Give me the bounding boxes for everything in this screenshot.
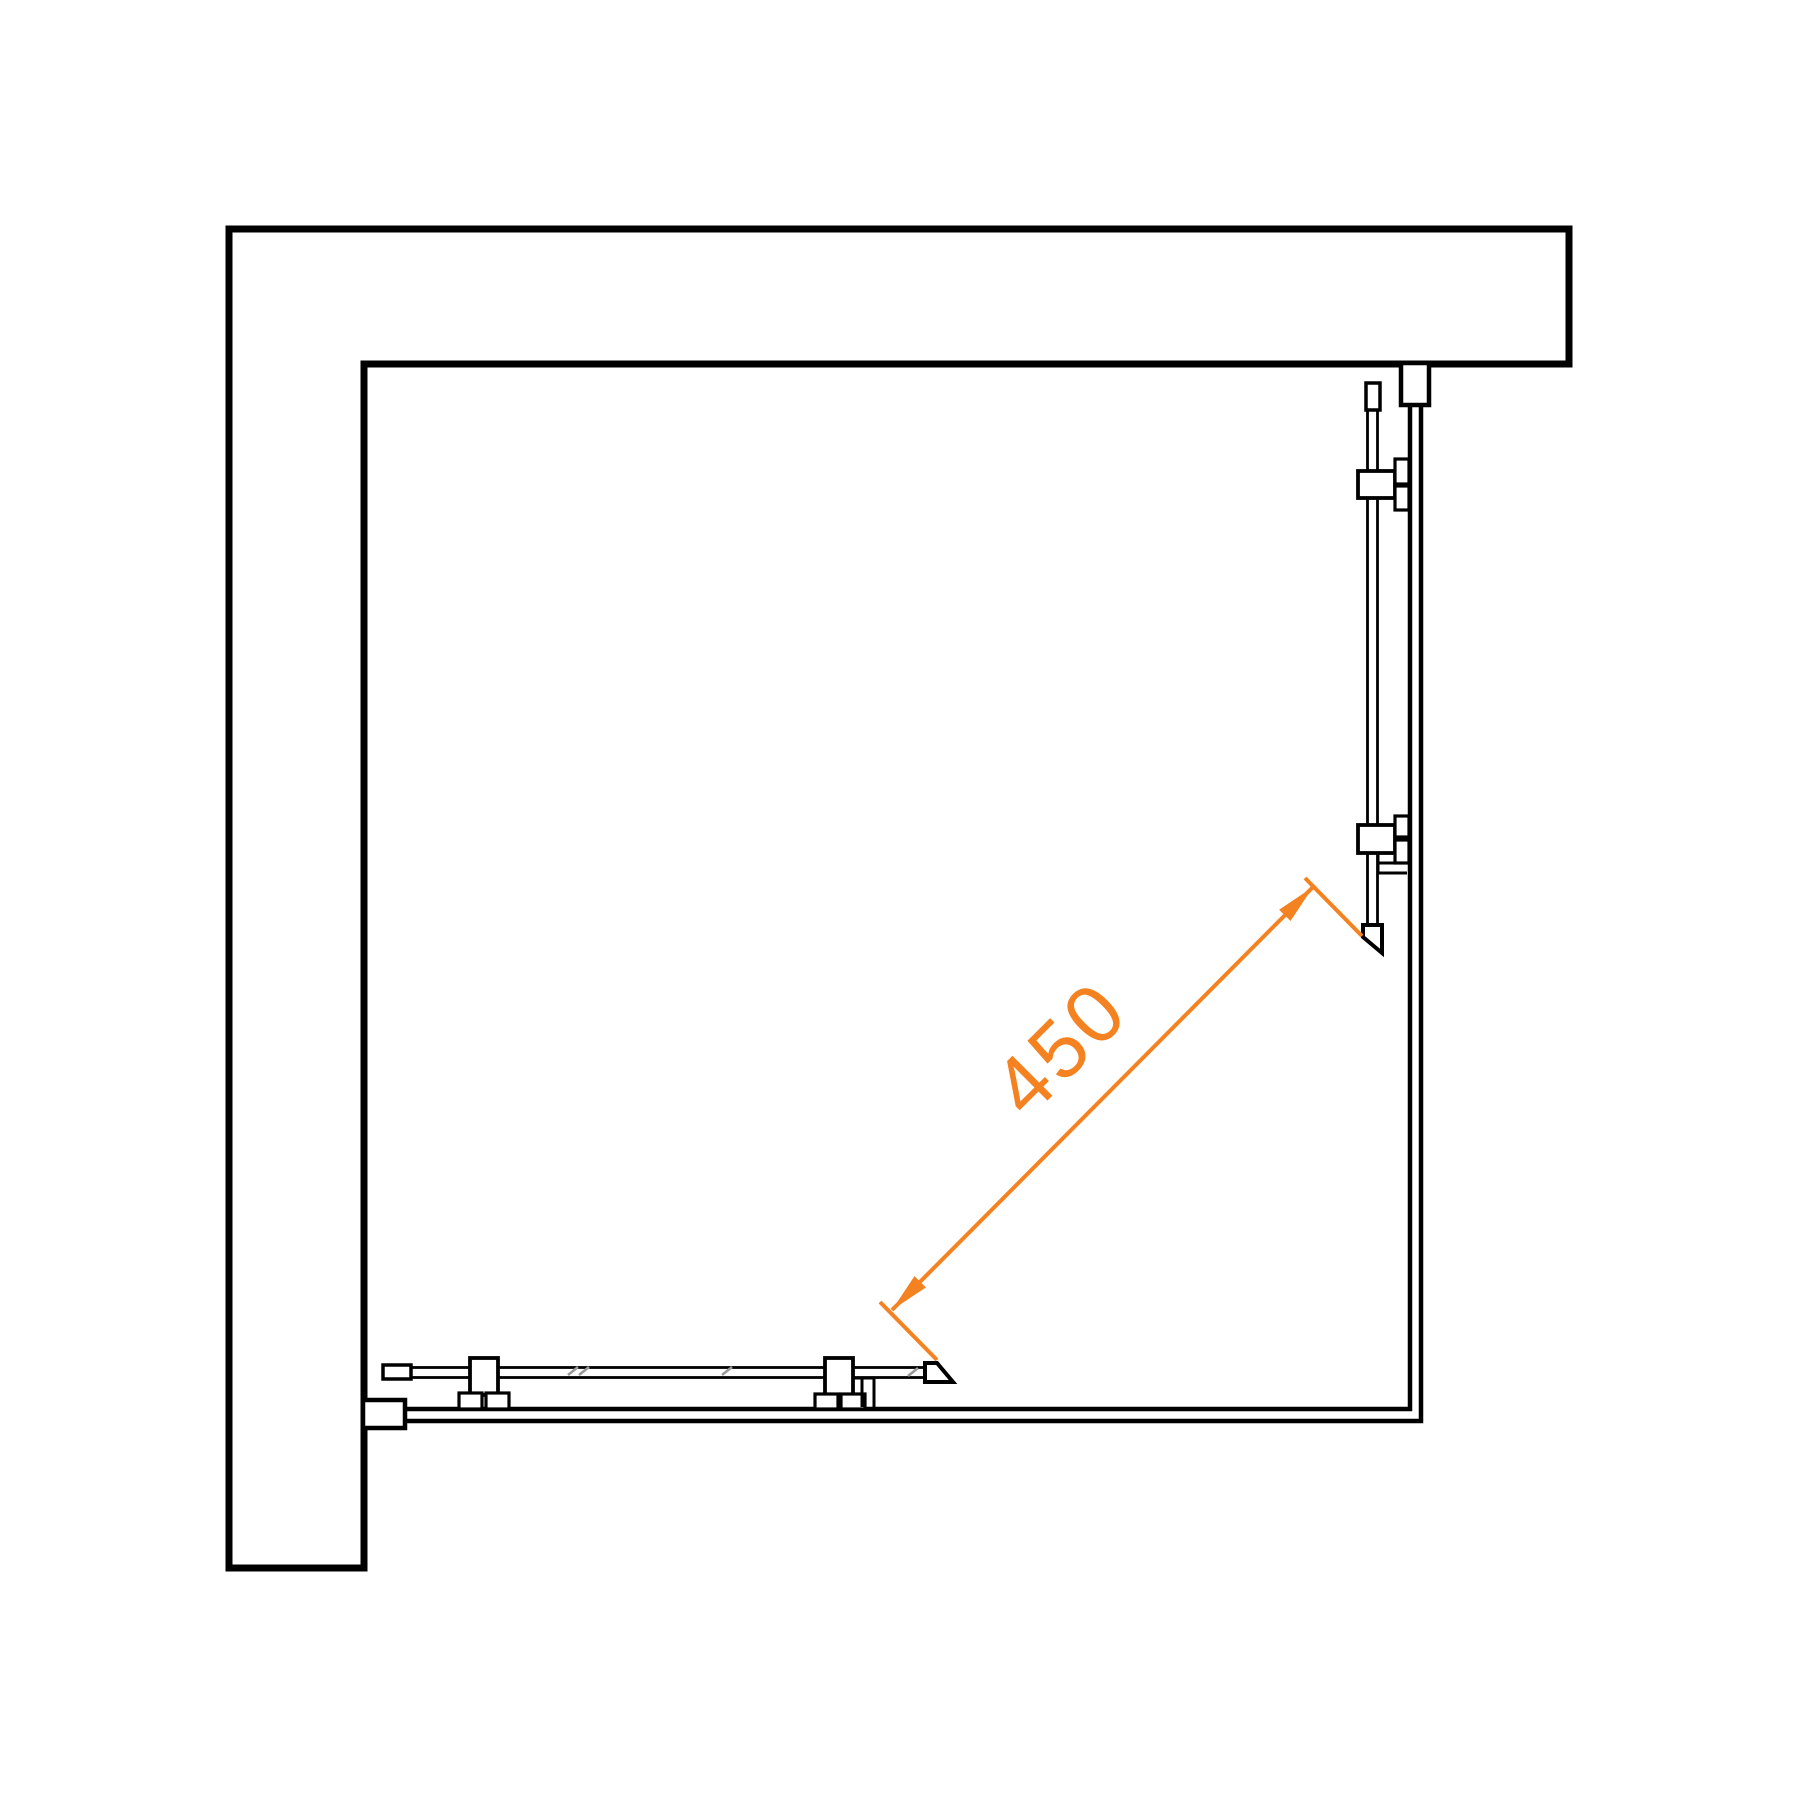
dimension-line: [892, 887, 1313, 1310]
dimension-witness-line-top: [1305, 878, 1362, 936]
right-panel-wall-bracket: [1401, 363, 1429, 405]
right-door-handle: [1363, 925, 1382, 953]
frame-outer-edge: [405, 405, 1421, 1421]
bottom-door-roller-left: [470, 1358, 498, 1395]
right-door-roller-lower-pad-b: [1395, 840, 1409, 863]
dimension-label: 450: [976, 964, 1146, 1134]
plan-drawing-canvas: 450: [0, 0, 1800, 1800]
right-door-roller-lower-pad-a: [1395, 816, 1409, 837]
right-door-end-cap: [1366, 383, 1380, 410]
right-door-roller-upper: [1358, 471, 1395, 498]
plan-drawing: 450: [0, 0, 1800, 1800]
bottom-door-roller-left-pad-a: [459, 1393, 482, 1409]
right-door-roller-upper-pad-a: [1395, 459, 1409, 484]
bottom-door-roller-right: [825, 1358, 853, 1395]
bottom-door-end-cap: [383, 1365, 411, 1379]
dimension-witness-line-bottom: [880, 1302, 937, 1360]
frame-inner-edge: [405, 405, 1410, 1409]
dimension-450: 450: [880, 878, 1362, 1360]
right-door-roller-lower: [1358, 825, 1395, 853]
bottom-sliding-door: [383, 1358, 953, 1409]
bottom-door-handle: [925, 1363, 953, 1382]
bottom-door-roller-right-pad-a: [815, 1394, 838, 1409]
right-sliding-door: [1358, 383, 1409, 953]
right-door-roller-upper-pad-b: [1395, 486, 1409, 510]
bottom-door-roller-left-pad-b: [486, 1393, 509, 1409]
bottom-panel-wall-bracket: [363, 1400, 405, 1428]
